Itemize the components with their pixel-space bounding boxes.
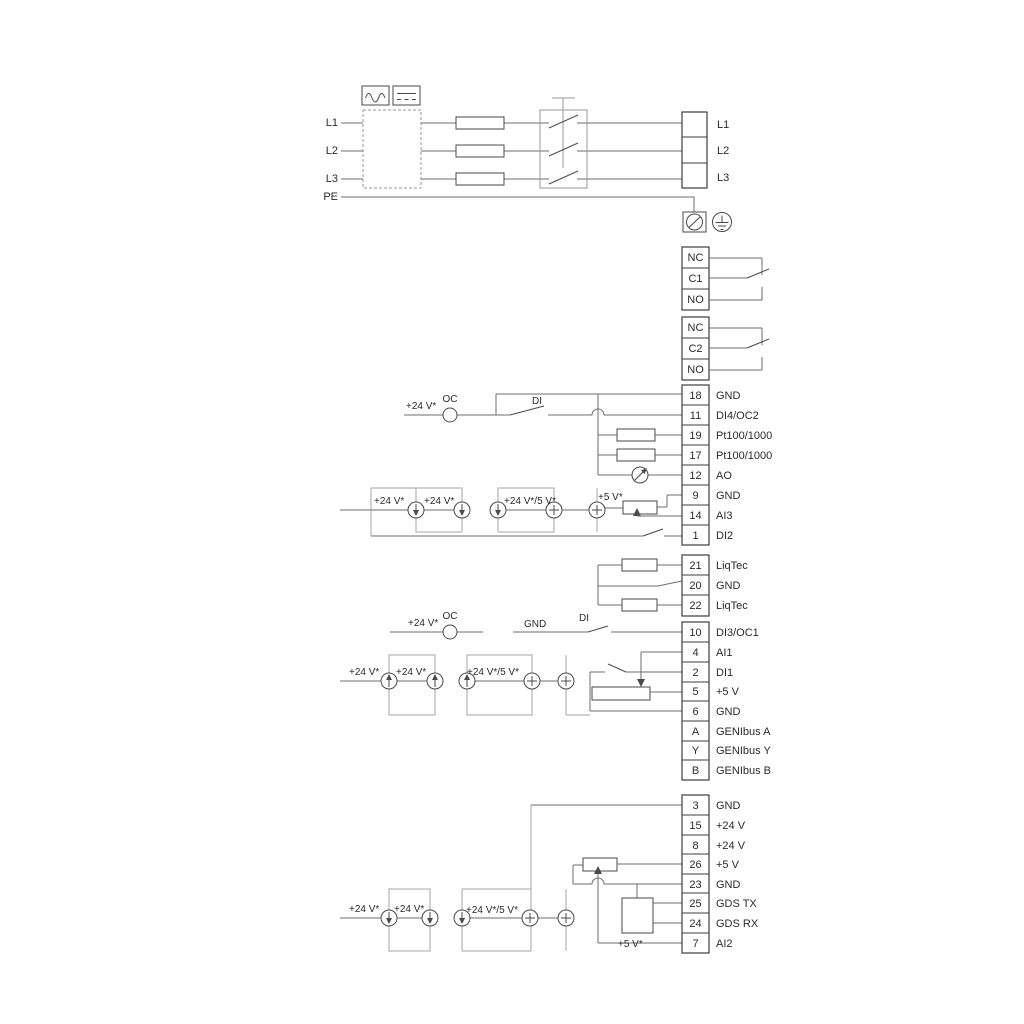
gds-sensor-icon [622,898,653,933]
terminal-label: AO [716,470,732,482]
relay-2-terminals: NC C2 NO [682,317,769,380]
terminal-id: C1 [688,273,702,285]
sensor-loop [467,655,532,715]
wire-ai3 [340,508,623,510]
terminal-label: AI1 [716,647,733,659]
potentiometer-icon [592,687,650,700]
terminal-label: Pt100/1000 [716,450,772,462]
terminal-label: GDS TX [716,898,757,910]
wire-gnd-9 [657,495,682,507]
liqtec-sensor-icon [622,599,657,611]
di3-oc1-circuit: +24 V* OC GND DI [390,611,682,639]
terminal-label: AI3 [716,510,733,522]
terminal-label: +5 V [716,686,740,698]
terminal-label: LiqTec [716,600,748,612]
terminal-id: 19 [689,430,701,442]
terminal-id: 22 [689,600,701,612]
terminal-id: Y [692,745,700,757]
terminal-group-1: 18 11 19 17 12 9 14 1 GND DI4/OC2 Pt100/… [682,385,772,545]
wire-pe [341,197,694,212]
terminal-label: GND [716,580,741,592]
terminal-id: 23 [689,879,701,891]
pt100-resistor-icon [617,449,655,461]
di1-switch-icon [608,664,626,672]
di-label: DI [579,613,589,624]
terminal-label: DI2 [716,530,733,542]
terminal-id: 17 [689,450,701,462]
v24-v5-label: +24 V*/5 V* [467,667,519,678]
terminal-id: 3 [692,800,698,812]
potentiometer-icon [583,858,617,871]
terminal-label: LiqTec [716,560,748,572]
terminal-label: GENIbus A [716,726,771,738]
terminal-id: 1 [692,530,698,542]
potentiometer-icon [623,501,657,514]
relay-1-terminals: NC C1 NO [682,247,769,310]
ai3-circuit: +24 V* +24 V* +24 V*/5 V* +5 V* [340,488,682,536]
liqtec-circuit [598,559,682,611]
terminal-id: A [692,726,700,738]
v24-label: +24 V* [408,618,438,629]
relay-2-wires [709,328,762,370]
terminal-id: 5 [692,686,698,698]
gds-wires [653,903,682,923]
terminal-id: NC [688,322,704,334]
v5-label: +5 V* [618,939,643,950]
di4-switch-icon [510,406,544,415]
pt100-resistor-icon [617,429,655,441]
v24-label: +24 V* [394,904,424,915]
terminal-id: 6 [692,706,698,718]
v24-label: +24 V* [424,496,454,507]
terminal-id: 15 [689,820,701,832]
terminal-id: 24 [689,918,701,930]
v24-v5-label: +24 V*/5 V* [504,496,556,507]
v24-label: +24 V* [349,667,379,678]
v24-label: +24 V* [349,904,379,915]
terminal-label: GND [716,879,741,891]
di3-switch-icon [588,626,608,632]
ai1-circuit: +24 V* +24 V* +24 V*/5 V* [340,652,682,715]
terminal-id: 11 [690,410,701,422]
earth-ground-icon [713,213,732,232]
relay-2-contact-icon [747,339,769,348]
main-switch-icon [540,98,587,188]
mains-terminal-block: L1 L2 L3 [682,112,729,188]
terminal-label: Pt100/1000 [716,430,772,442]
terminal-id: 4 [692,647,698,659]
pt100-sensors [598,429,682,461]
v24-label: +24 V* [396,667,426,678]
phase-label-l1: L1 [326,117,338,129]
wire-gnd-23 [573,878,682,884]
v5-label: +5 V* [598,492,623,503]
terminal-id: 26 [689,859,701,871]
terminal-label: GND [716,800,741,812]
phase-label-l2: L2 [326,145,338,157]
fuse-icons [456,117,504,185]
terminal-group-2: 21 20 22 LiqTec GND LiqTec [682,555,748,616]
ai2-gds-circuit: +24 V* +24 V* +24 V*/5 V* +5 V* [340,805,682,951]
terminal-group-4: 3 15 8 26 23 25 24 7 GND +24 V +24 V +5 … [682,795,759,953]
wire-ai1-4 [641,652,682,679]
relay-1-wires [709,258,762,300]
terminal-id: 10 [689,627,701,639]
terminal-label: GENIbus Y [716,745,771,757]
block-label-l1: L1 [717,119,729,131]
terminal-id: 20 [689,580,701,592]
terminal-label: +24 V [716,820,746,832]
filter-box [363,110,421,188]
terminal-id: NO [687,364,704,376]
oc-label: OC [443,611,458,622]
terminal-label: AI2 [716,938,733,950]
dc-lines-icon [393,86,420,105]
terminal-id: NO [687,294,704,306]
block-label-l3: L3 [717,172,729,184]
terminal-id: C2 [688,343,702,355]
terminal-label: GND [716,490,741,502]
terminal-label: DI1 [716,667,733,679]
screw-terminal-icon [683,212,706,232]
terminal-id: 8 [692,840,698,852]
ao-output [598,467,682,483]
terminal-id: 12 [689,470,701,482]
phase-label-l3: L3 [326,173,338,185]
terminal-label: +24 V [716,840,746,852]
terminal-id: 9 [692,490,698,502]
mains-input-section: L1 L2 L3 PE [323,86,731,232]
terminal-id: 7 [692,938,698,950]
terminal-id: 25 [689,898,701,910]
terminal-label: GDS RX [716,918,759,930]
v24-label: +24 V* [374,496,404,507]
liqtec-sensor-icon [622,559,657,571]
v24-label: +24 V* [406,401,436,412]
di-label: DI [532,396,542,407]
block-label-l2: L2 [717,145,729,157]
gnd-label: GND [524,619,546,630]
terminal-id: 2 [692,667,698,679]
relay-1-contact-icon [747,269,769,278]
terminal-id: NC [688,252,704,264]
sensor-loop [462,889,531,951]
ac-waveform-icon [362,86,389,105]
terminal-label: DI4/OC2 [716,410,759,422]
terminal-label: DI3/OC1 [716,627,759,639]
wiring-diagram: L1 L2 L3 PE [0,0,1024,1024]
di2-switch-icon [643,529,663,536]
terminal-id: 21 [689,560,701,572]
terminal-id: 14 [689,510,701,522]
v24-v5-label: +24 V*/5 V* [466,905,518,916]
terminal-label: GND [716,706,741,718]
pot-left-link [573,865,583,884]
terminal-label: +5 V [716,859,740,871]
terminal-label: GENIbus B [716,765,771,777]
terminal-group-3: 10 4 2 5 6 A Y B DI3/OC1 AI1 DI1 +5 V GN… [682,622,771,780]
terminal-label: GND [716,390,741,402]
terminal-id: B [692,765,699,777]
oc-label: OC [443,394,458,405]
phase-label-pe: PE [323,191,338,203]
terminal-id: 18 [689,390,701,402]
open-collector-icon [443,625,457,639]
open-collector-icon [443,408,457,422]
